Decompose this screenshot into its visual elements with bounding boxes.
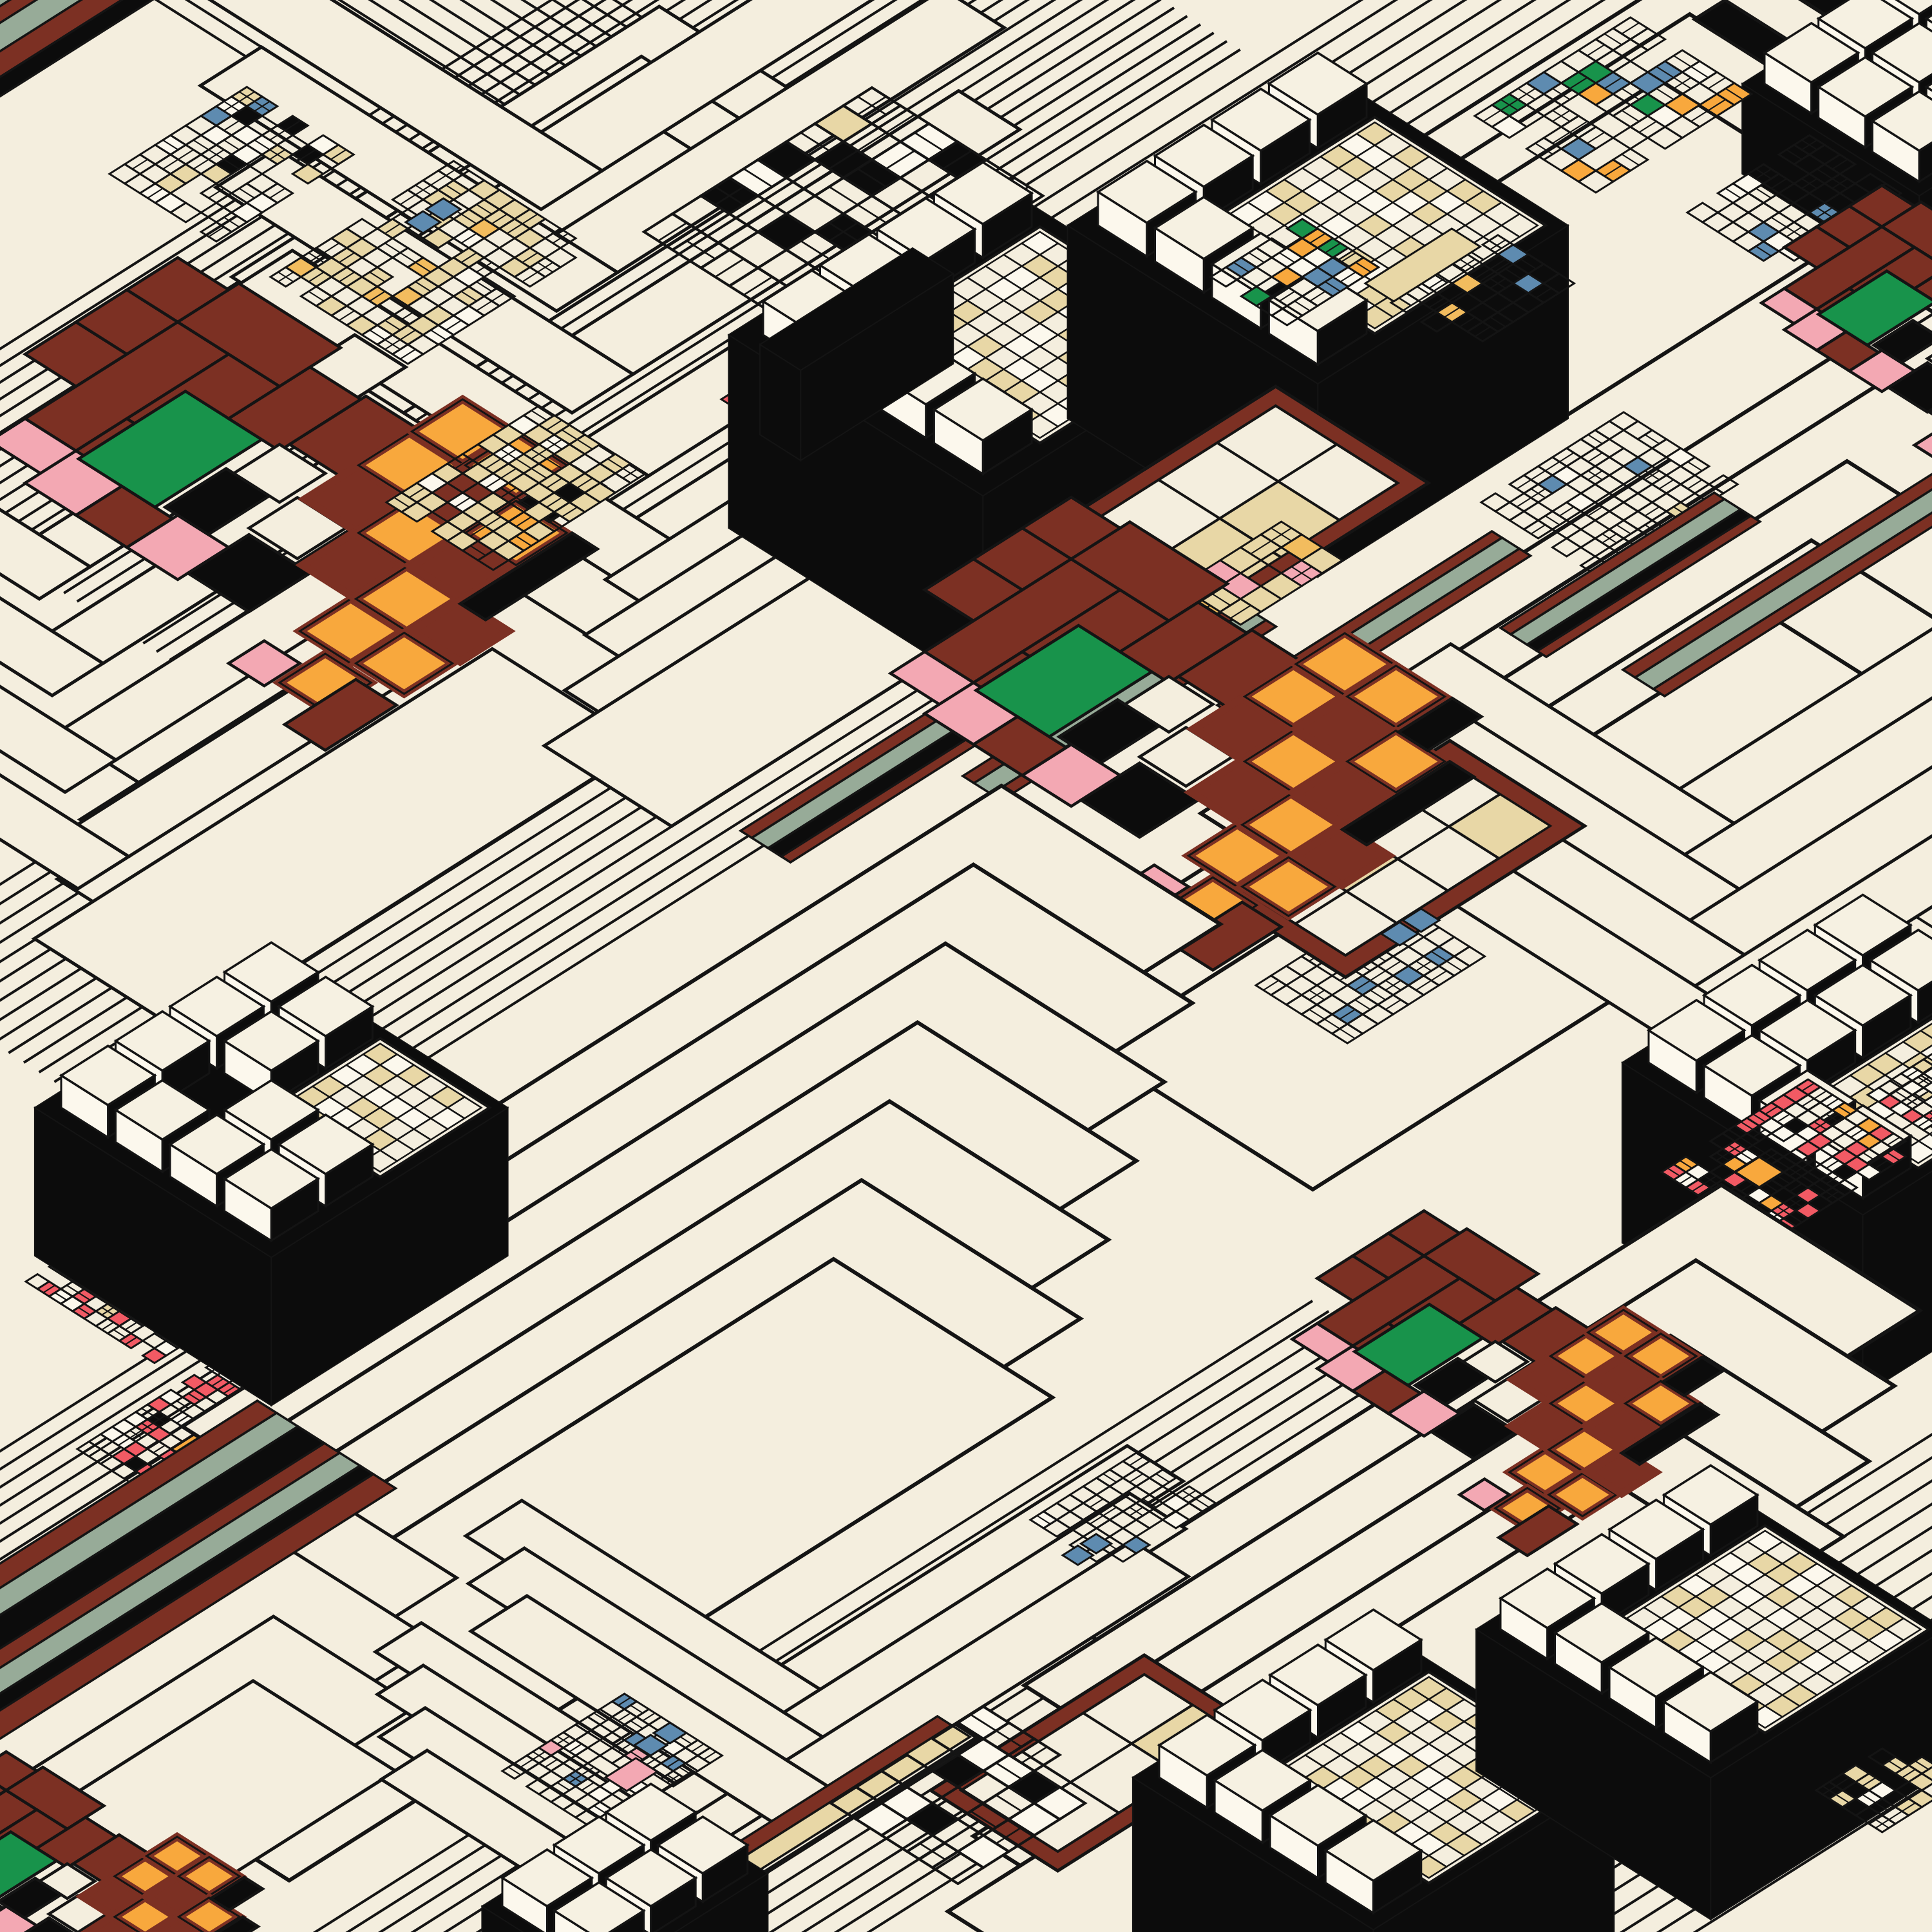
- generative-artwork-canvas: [0, 0, 1932, 1932]
- artwork-stage: Axonometric generative composition — cre…: [0, 0, 1932, 1932]
